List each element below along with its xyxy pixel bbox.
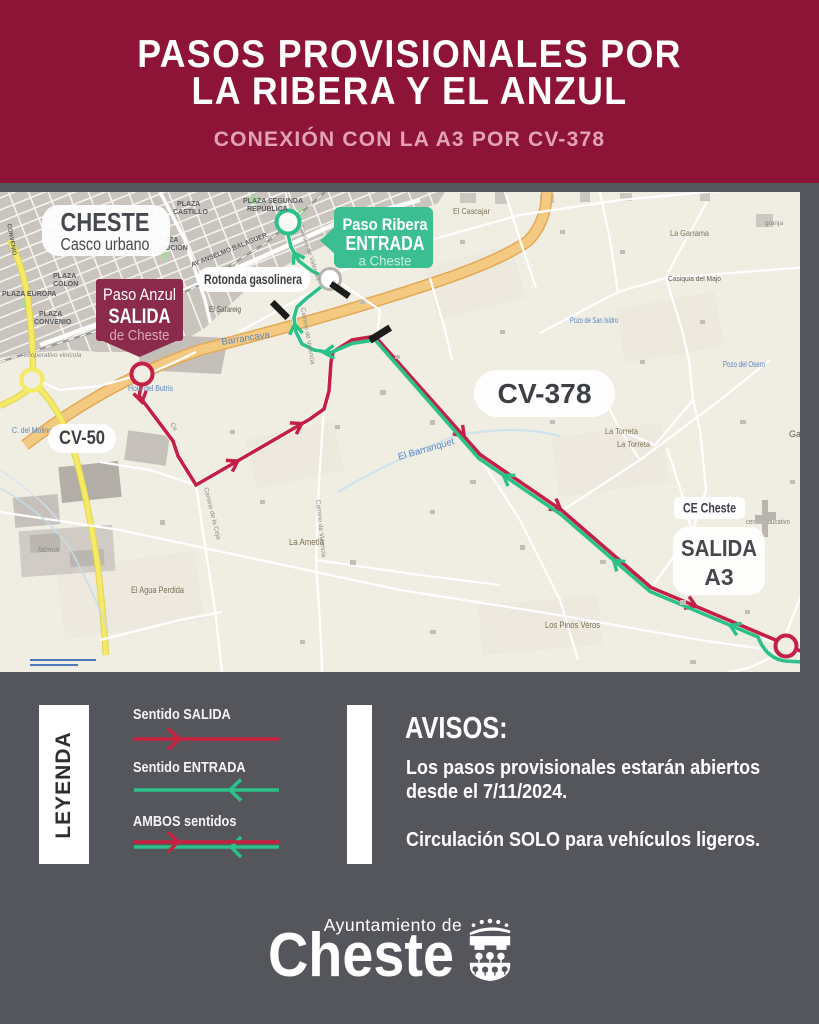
svg-text:CE Cheste: CE Cheste [683, 501, 736, 516]
svg-text:fábrica: fábrica [38, 547, 59, 554]
svg-text:Paso Ribera: Paso Ribera [343, 215, 428, 234]
svg-text:La Garrama: La Garrama [670, 228, 709, 238]
svg-text:Pozo del Osero: Pozo del Osero [723, 359, 765, 369]
svg-text:Hoia del Butris: Hoia del Butris [128, 384, 173, 393]
svg-text:CV-50: CV-50 [59, 428, 105, 449]
svg-text:CHESTE: CHESTE [61, 207, 150, 237]
svg-text:SALIDA: SALIDA [681, 535, 757, 561]
svg-text:COLON: COLON [53, 281, 78, 288]
svg-text:PLAZA: PLAZA [39, 311, 62, 318]
svg-text:A3: A3 [704, 564, 733, 590]
svg-text:PLAZA: PLAZA [53, 273, 76, 280]
svg-text:REPÚBLICA: REPÚBLICA [247, 204, 288, 213]
svg-text:cooperativo vinícola: cooperativo vinícola [24, 352, 82, 359]
svg-text:Los Pinos Veros: Los Pinos Veros [545, 620, 600, 630]
svg-text:Casco urbano: Casco urbano [61, 234, 150, 254]
svg-text:granja: granja [765, 220, 783, 227]
svg-text:Pozo de San Isidro: Pozo de San Isidro [570, 315, 618, 325]
svg-text:El Safareig: El Safareig [209, 304, 241, 314]
svg-text:Casiquia del Majo: Casiquia del Majo [668, 274, 721, 283]
svg-text:CONVENIO: CONVENIO [34, 319, 72, 326]
svg-text:La Torreta: La Torreta [605, 426, 638, 436]
svg-text:centro educativo: centro educativo [746, 519, 790, 526]
svg-text:PLAZA SEGUNDA: PLAZA SEGUNDA [243, 198, 303, 205]
svg-text:El Cascajar: El Cascajar [453, 206, 490, 216]
svg-text:C. del Molino: C. del Molino [12, 426, 52, 435]
svg-text:CASTILLO: CASTILLO [173, 209, 209, 216]
svg-text:La Torreta: La Torreta [617, 439, 650, 449]
svg-text:de Cheste: de Cheste [110, 327, 170, 344]
svg-text:PLAZA: PLAZA [177, 201, 200, 208]
svg-text:CV-378: CV-378 [498, 378, 592, 409]
svg-text:PLAZA EUROPA: PLAZA EUROPA [2, 291, 56, 298]
svg-text:a Cheste: a Cheste [359, 253, 412, 269]
svg-text:SALIDA: SALIDA [109, 305, 171, 328]
svg-text:El Agua Perdida: El Agua Perdida [131, 585, 184, 595]
svg-text:Rotonda gasolinera: Rotonda gasolinera [204, 271, 302, 287]
svg-text:Paso Anzul: Paso Anzul [103, 286, 176, 304]
